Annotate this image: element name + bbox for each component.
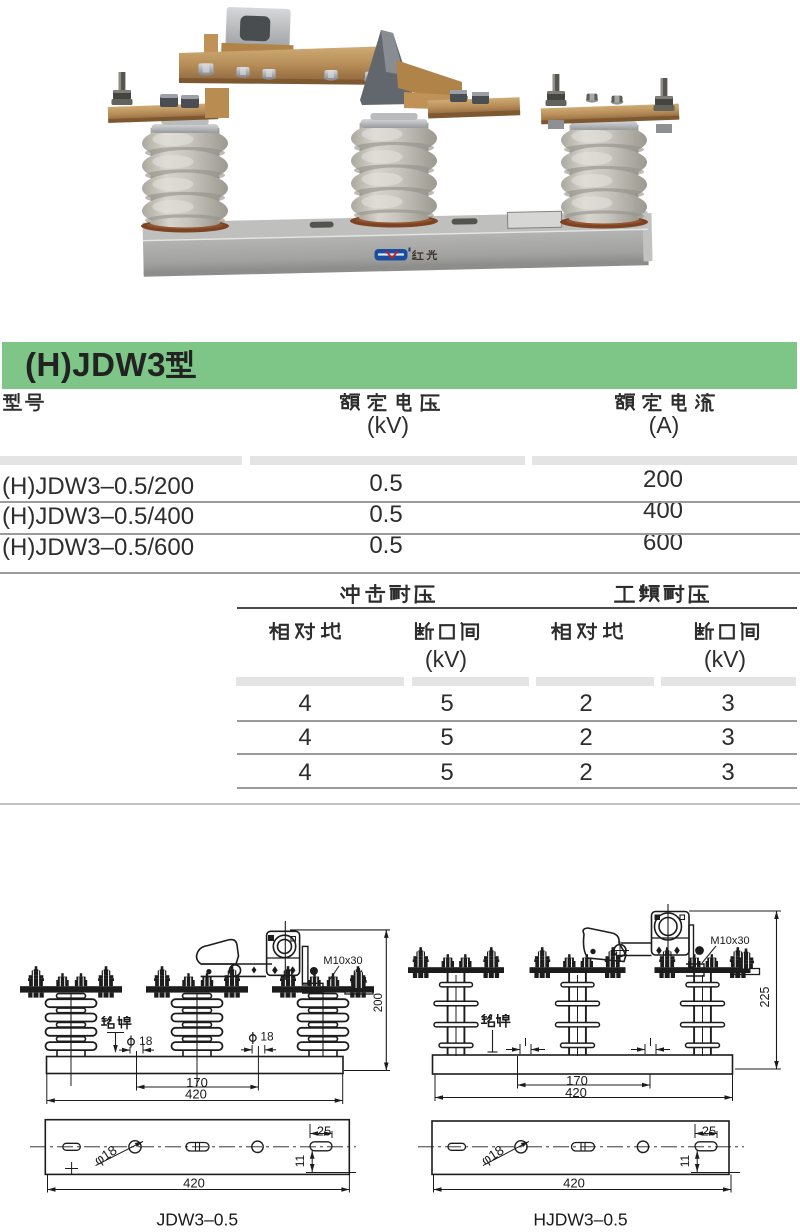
svg-text:JDW3–0.5: JDW3–0.5 bbox=[156, 1210, 238, 1230]
svg-text:18: 18 bbox=[260, 1030, 274, 1044]
svg-text:420: 420 bbox=[563, 1176, 585, 1191]
svg-text:200: 200 bbox=[373, 993, 385, 1012]
svg-text:420: 420 bbox=[183, 1176, 205, 1191]
svg-text:M10x30: M10x30 bbox=[323, 955, 362, 967]
svg-text:225: 225 bbox=[758, 987, 772, 1008]
svg-text:M10x30: M10x30 bbox=[710, 935, 749, 947]
svg-text:HJDW3–0.5: HJDW3–0.5 bbox=[533, 1210, 627, 1230]
svg-text:11: 11 bbox=[293, 1154, 307, 1167]
svg-text:25: 25 bbox=[702, 1124, 716, 1139]
svg-text:420: 420 bbox=[185, 1087, 207, 1102]
svg-text:18: 18 bbox=[139, 1034, 153, 1048]
svg-text:11: 11 bbox=[678, 1154, 692, 1167]
svg-text:25: 25 bbox=[317, 1124, 331, 1139]
